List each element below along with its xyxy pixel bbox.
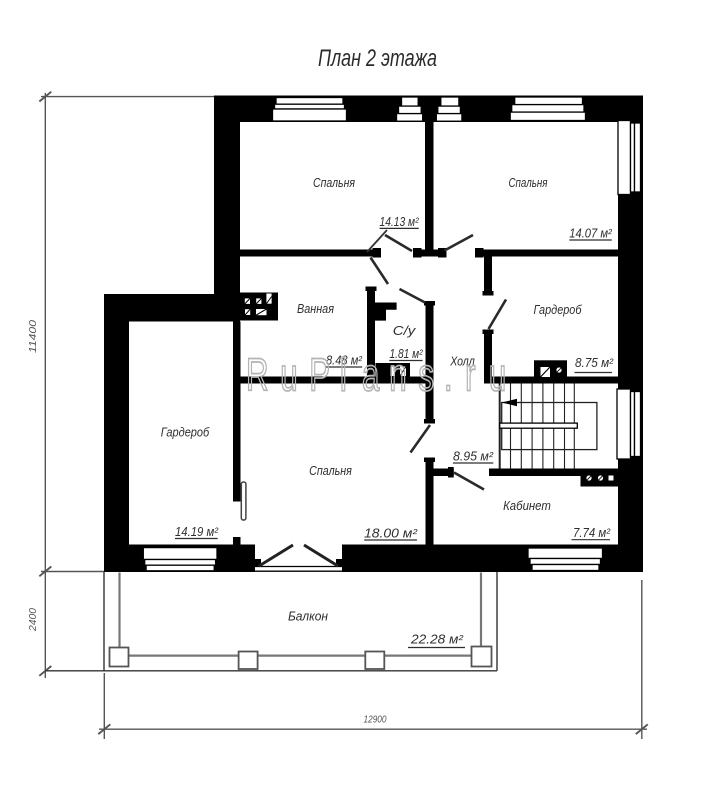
svg-text:Балкон: Балкон bbox=[288, 609, 328, 624]
svg-text:11400: 11400 bbox=[27, 320, 39, 353]
svg-text:14.13 м²: 14.13 м² bbox=[380, 214, 420, 229]
svg-text:Спальня: Спальня bbox=[509, 175, 548, 190]
svg-text:Спальня: Спальня bbox=[309, 463, 352, 478]
svg-text:2400: 2400 bbox=[27, 608, 39, 632]
svg-text:Гардероб: Гардероб bbox=[534, 302, 583, 317]
svg-text:RuPlans.ru: RuPlans.ru bbox=[246, 350, 506, 401]
svg-text:Спальня: Спальня bbox=[313, 175, 355, 190]
svg-text:12900: 12900 bbox=[364, 714, 387, 726]
svg-text:8.95 м²: 8.95 м² bbox=[453, 449, 494, 464]
svg-text:18.00 м²: 18.00 м² bbox=[364, 526, 418, 541]
svg-text:8.75 м²: 8.75 м² bbox=[575, 355, 614, 370]
svg-text:Ванная: Ванная bbox=[297, 301, 334, 316]
svg-text:22.28 м²: 22.28 м² bbox=[410, 632, 464, 647]
svg-text:С/у: С/у bbox=[393, 323, 417, 338]
svg-text:14.07 м²: 14.07 м² bbox=[569, 226, 612, 241]
svg-text:План 2 этажа: План 2 этажа bbox=[318, 45, 437, 72]
svg-text:14.19 м²: 14.19 м² bbox=[175, 524, 219, 539]
svg-text:Гардероб: Гардероб bbox=[161, 425, 210, 440]
svg-text:7.74 м²: 7.74 м² bbox=[573, 525, 611, 540]
svg-text:Кабинет: Кабинет bbox=[503, 498, 551, 513]
